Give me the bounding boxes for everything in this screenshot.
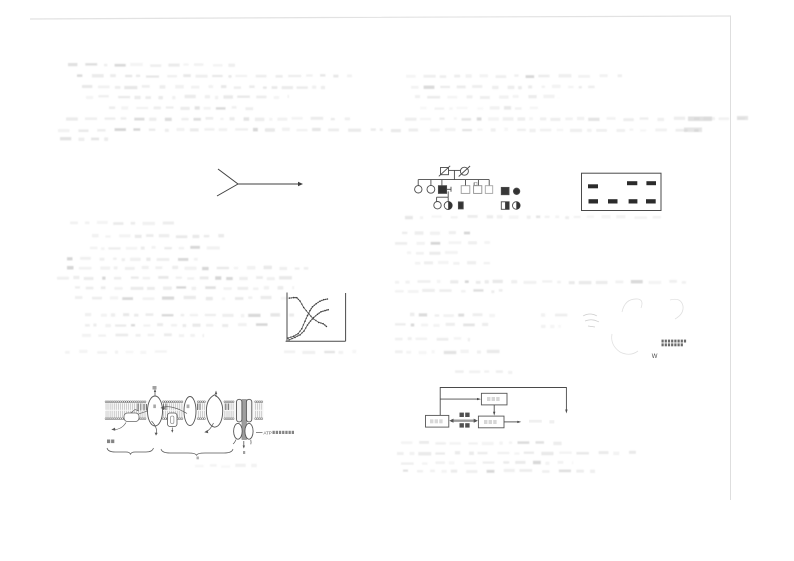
svg-text:W: W [652,354,658,360]
svg-text:ATP: ATP [264,431,272,436]
